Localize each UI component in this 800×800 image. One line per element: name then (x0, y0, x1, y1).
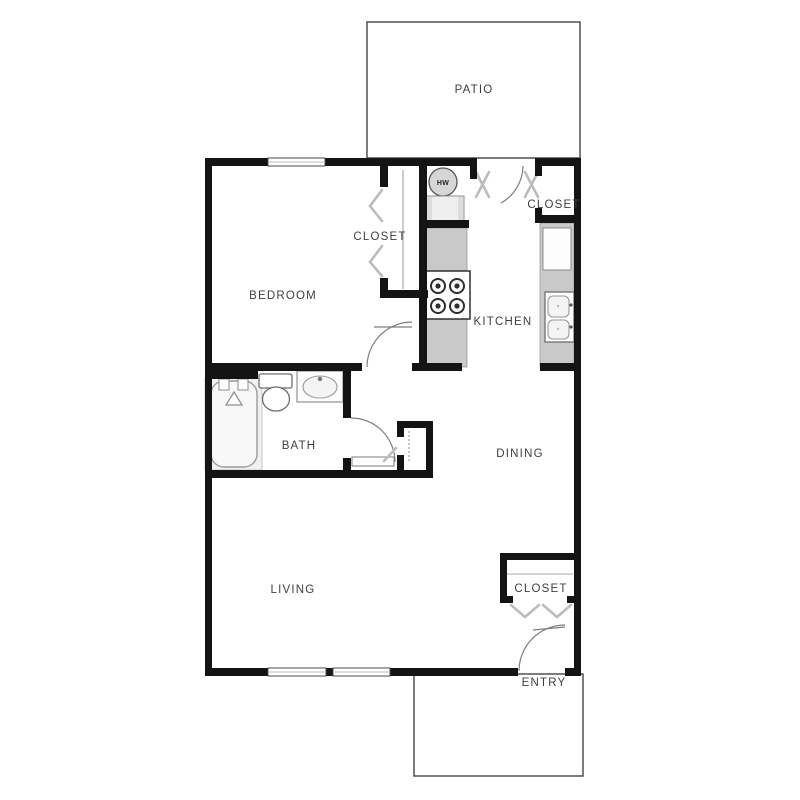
bedroom-label: BEDROOM (249, 290, 317, 302)
refrigerator-icon (543, 228, 571, 270)
water-heater-label: HW (437, 180, 449, 187)
entry-label: ENTRY (522, 677, 567, 689)
floor-plan: HW (0, 0, 800, 800)
water-heater-icon: HW (429, 168, 457, 196)
linen-closet-west-stub-bottom (397, 455, 404, 478)
vanity-sink-icon (297, 371, 343, 402)
kitchen-west-wall (419, 163, 427, 371)
entry-closet-north-wall (500, 553, 581, 560)
patio-door (476, 166, 538, 203)
linen-closet-west-stub-top (397, 421, 404, 437)
entry-porch-outline (414, 674, 583, 776)
bathtub-icon (205, 378, 262, 470)
bath-door-stub (343, 458, 351, 470)
entry-closet-bifold (511, 605, 571, 617)
linen-closet-door (384, 431, 409, 461)
bottom-wall-right (565, 668, 581, 676)
utility-closet-east-stub (470, 163, 477, 179)
bath-east-wall (343, 363, 351, 418)
bottom-wall-left (205, 668, 268, 676)
patio-label: PATIO (455, 84, 494, 96)
top-wall-mid (325, 158, 477, 166)
floor-plan-svg: HW (0, 0, 800, 800)
bedroom-door (367, 322, 412, 367)
living-label: LIVING (271, 584, 316, 596)
bedroom-closet-stub-top (380, 163, 388, 187)
linen-closet-east-wall (426, 421, 433, 478)
entry-closet-sw-stub (500, 596, 513, 603)
bedroom-south-wall (205, 363, 362, 371)
bottom-wall-pier (326, 668, 333, 676)
kitchen-label: KITCHEN (474, 316, 533, 328)
kitchen-closet-south-wall (535, 215, 581, 223)
utility-closet-south-wall (419, 220, 469, 228)
toilet-icon (259, 374, 292, 411)
bedroom-closet-stub-bottom (380, 278, 388, 292)
bedroom-closet-label: CLOSET (353, 231, 406, 243)
bath-label: BATH (282, 440, 317, 452)
entry-door (519, 625, 565, 671)
bath-door (351, 418, 395, 466)
left-wall (205, 158, 212, 676)
entry-closet-se-stub (567, 596, 581, 603)
tub-head-wall (205, 371, 258, 379)
kitchen-sink-icon (545, 292, 574, 342)
bottom-wall-mid (390, 668, 518, 676)
entry-closet-label: CLOSET (514, 583, 567, 595)
bedroom-closet-south-wall (380, 290, 428, 298)
kitchen-closet-label: CLOSET (527, 199, 580, 211)
washer-icon (426, 196, 464, 223)
dining-label: DINING (496, 448, 543, 460)
kitchen-south-cap-right (540, 363, 581, 371)
top-wall-left (205, 158, 268, 166)
entry-closet-west-wall (500, 553, 507, 603)
range-stove-icon (425, 271, 470, 319)
kitchen-closet-west-stub-top (535, 163, 542, 176)
